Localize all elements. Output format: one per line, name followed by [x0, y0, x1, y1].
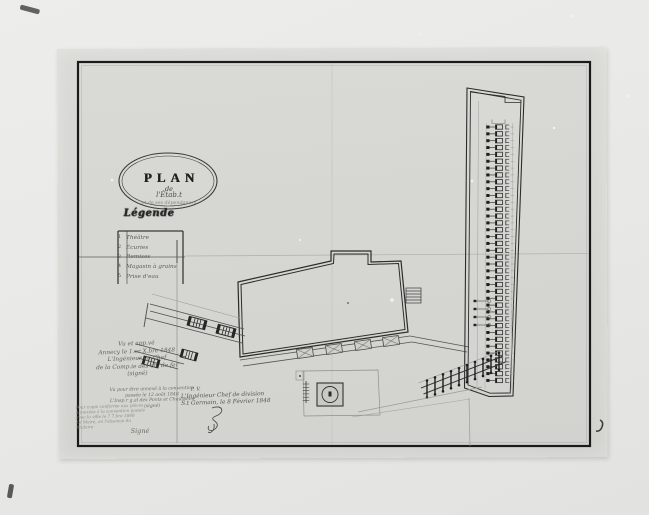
- legend-item: 1 Théâtre: [113, 233, 181, 243]
- legend-item-number: 2: [113, 245, 126, 250]
- main-building: [238, 251, 408, 357]
- plan-drawing: [0, 0, 649, 515]
- center-signature-block: P. V. L'Ingénieur Chef de division S.t G…: [181, 383, 300, 409]
- legend-item-label: Écuries: [126, 245, 148, 251]
- legend-item-number: 4: [113, 264, 126, 269]
- certification-signature: Signé: [120, 427, 160, 435]
- legend-item-label: Théâtre: [126, 235, 149, 241]
- legend-item: 2 Écuries: [113, 243, 181, 253]
- legend-heading: Légende: [123, 208, 175, 219]
- stable-building: [465, 88, 525, 397]
- plan-title-script2: et de ses dépendances: [133, 201, 205, 206]
- approval-block-engineer: Vu et app.vé Annecy le 1.er X.bre 1848 L…: [77, 339, 196, 381]
- legend-item: 3 Remises: [113, 252, 181, 262]
- legend-item-number: 5: [113, 274, 126, 279]
- legend-item: 5 Prise d'eau: [113, 272, 181, 282]
- legend-item-number: 3: [113, 255, 126, 260]
- stairs: [406, 288, 421, 303]
- legend-item-number: 1: [113, 235, 126, 240]
- comb-structure: [419, 351, 506, 394]
- legend-list: 1 Théâtre 2 Écuries 3 Remises 4 Magasin …: [113, 233, 181, 281]
- legend-item-label: Remises: [126, 254, 151, 260]
- plan-title: PLAN: [124, 170, 214, 186]
- signature-paraphe: [208, 407, 222, 433]
- legend-item: 4 Magasin à grains: [113, 262, 181, 272]
- platform-huts: [296, 335, 399, 358]
- legend-item-label: Magasin à grains: [126, 264, 177, 270]
- scanned-plan-photograph: PLAN de l'Étab.t et de ses dépendances L…: [0, 0, 649, 515]
- gas-holder-yard: [296, 370, 380, 416]
- plan-title-script1: l'Étab.t: [140, 191, 198, 199]
- legend-item-label: Prise d'eau: [126, 274, 159, 280]
- yard-boundary-lines: [352, 387, 482, 446]
